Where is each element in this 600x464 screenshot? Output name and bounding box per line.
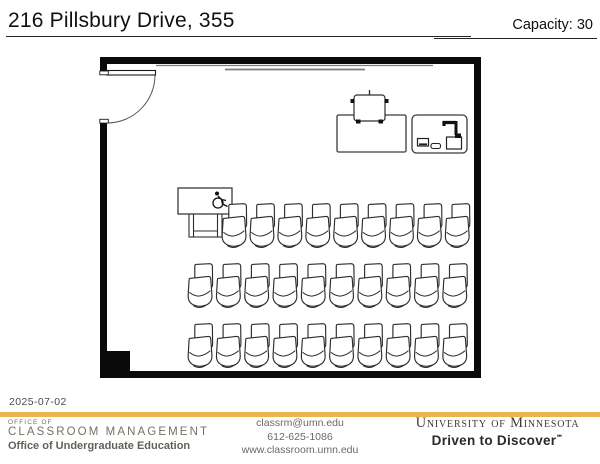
instructor-chair [351,90,389,124]
student-chair [330,324,354,368]
header-rule [6,36,471,37]
student-chair [330,264,354,308]
university-wordmark: University of Minnesota [405,415,590,432]
floor-plan [0,0,600,464]
student-chair [188,264,212,308]
brand-block: University of Minnesota Driven to Discov… [405,415,590,448]
student-chair [250,204,274,248]
student-chair [301,264,325,308]
whiteboard [156,66,433,70]
wall-right [474,57,481,378]
door-jamb-top [100,71,109,75]
door [100,71,156,124]
student-chair [445,204,469,248]
student-chair [216,264,240,308]
student-chair [417,204,441,248]
student-chair [216,324,240,368]
student-chair [273,264,297,308]
student-chair [443,264,467,308]
student-chair [415,324,439,368]
student-chair [334,204,358,248]
door-leaf [107,71,156,76]
page-title: 216 Pillsbury Drive, 355 [8,9,235,33]
door-jamb-bottom [100,119,109,123]
student-chair [188,324,212,368]
wall-top [100,57,481,64]
wall-bottom [100,371,481,378]
student-chair [306,204,330,248]
student-chair [386,324,410,368]
lectern-station [412,115,467,153]
student-chair [301,324,325,368]
pilaster-column [107,351,130,371]
keyboard-icon [431,144,441,149]
student-chair [273,324,297,368]
student-chair [443,324,467,368]
student-chair [245,324,269,368]
service-mark: ℠ [556,435,563,442]
tagline: Driven to Discover℠ [405,433,590,448]
student-chair [386,264,410,308]
door-swing-arc [107,75,155,123]
capacity-rule [434,38,597,39]
monitor-icon [418,139,429,147]
wall-left-lower [100,121,107,378]
date-label: 2025-07-02 [9,396,67,408]
student-chair [278,204,302,248]
student-chair [358,264,382,308]
instructor-area [337,90,406,152]
accessible-table [178,188,232,214]
student-chairs [188,204,470,368]
student-chair [362,204,386,248]
student-chair [390,204,414,248]
student-chair [245,264,269,308]
capacity-label: Capacity: 30 [512,17,593,33]
tagline-text: Driven to Discover [432,433,557,448]
student-chair [415,264,439,308]
student-chair [358,324,382,368]
